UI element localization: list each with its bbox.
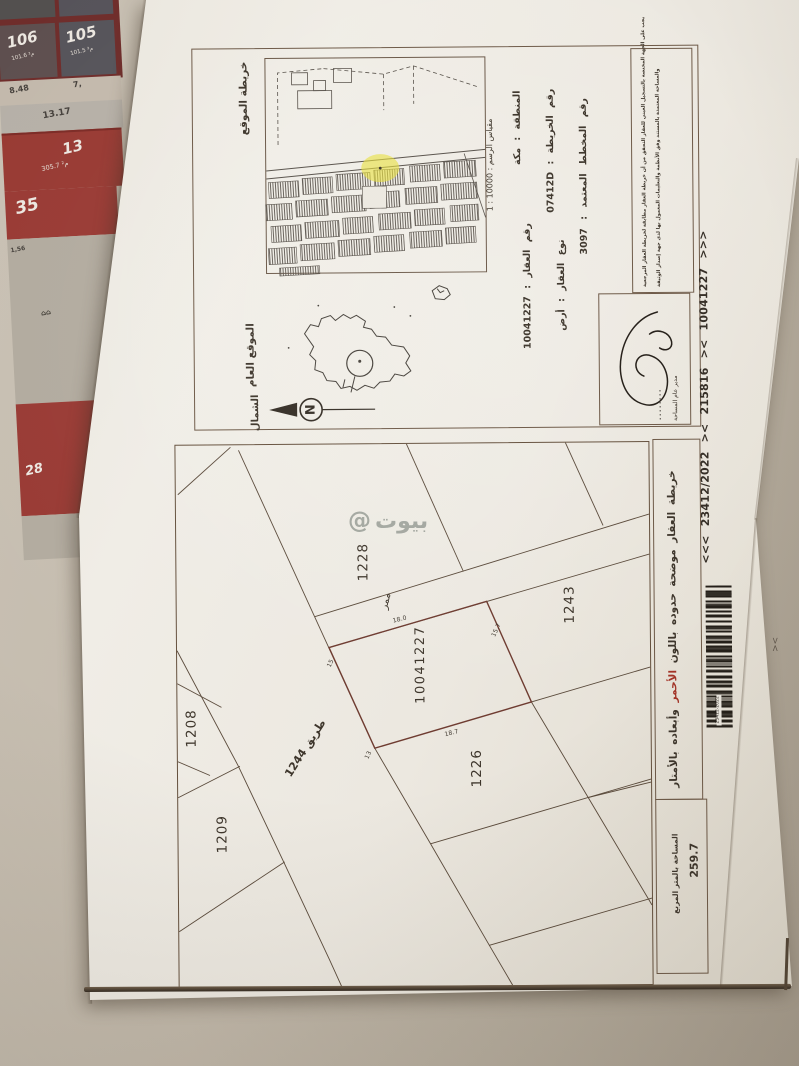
general-location-label: الموقع العام: [245, 323, 256, 387]
parcel-label-1243: 1243: [564, 585, 578, 623]
barcode: 23412-2022: [706, 585, 737, 727]
parcel-label-1228: 1228: [357, 543, 371, 581]
legend-red-word: الأحمر: [667, 670, 679, 703]
region-field: المنطقة : مكة: [513, 91, 523, 166]
location-map-title: خريطة الموقع: [238, 62, 249, 136]
location-map: [264, 56, 487, 274]
parcel-label-1208: 1208: [185, 709, 199, 747]
barcode-number: 23412-2022: [716, 694, 721, 725]
general-location-map: [274, 282, 475, 400]
north-label: الشمال: [251, 395, 261, 432]
signature-title: مدير عام المساحة: [673, 375, 679, 420]
area-box: [655, 799, 708, 974]
legend-text: خريطة العقار موضحة حدوده باللون الأحمر و…: [667, 470, 680, 787]
location-map-drawing: [265, 57, 486, 273]
watermark-text: بيوت: [375, 511, 428, 533]
subject-parcel-boundary: [329, 601, 532, 749]
map-number-field: رقم الخريطة : 07412D: [546, 89, 556, 213]
area-label: المساحة بالمتر المربع: [671, 834, 679, 914]
watermark-at-icon: @: [348, 510, 371, 533]
parcel-label-1226: 1226: [471, 749, 485, 787]
parcel-type-field: نوع العقار : أرض: [557, 239, 567, 330]
stray-mark: ><: [772, 637, 781, 652]
legend-pre: خريطة العقار موضحة حدوده باللون: [666, 470, 680, 670]
plan-number-field: رقم المخطط المعتمد : 3097: [579, 98, 590, 254]
parcel-label-1209: 1209: [216, 815, 230, 853]
area-value: 259.7: [689, 843, 700, 878]
north-arrow-icon: N: [267, 394, 379, 425]
scale-note: مقياس الرسم : 10000 : 1: [486, 119, 495, 212]
subject-parcel-label: 10041227: [414, 626, 428, 704]
north-letter: N: [304, 404, 319, 415]
watermark: @ بيوت: [348, 510, 428, 533]
photo-of-land-survey-document: 106 101.6 م² 105 101.5 م² 8.48 7, 13.17 …: [0, 0, 799, 1066]
legend-post: وأبعاده بالأمتار: [667, 702, 680, 787]
parcel-number-field: رقم العقار : 10041227: [523, 223, 533, 349]
